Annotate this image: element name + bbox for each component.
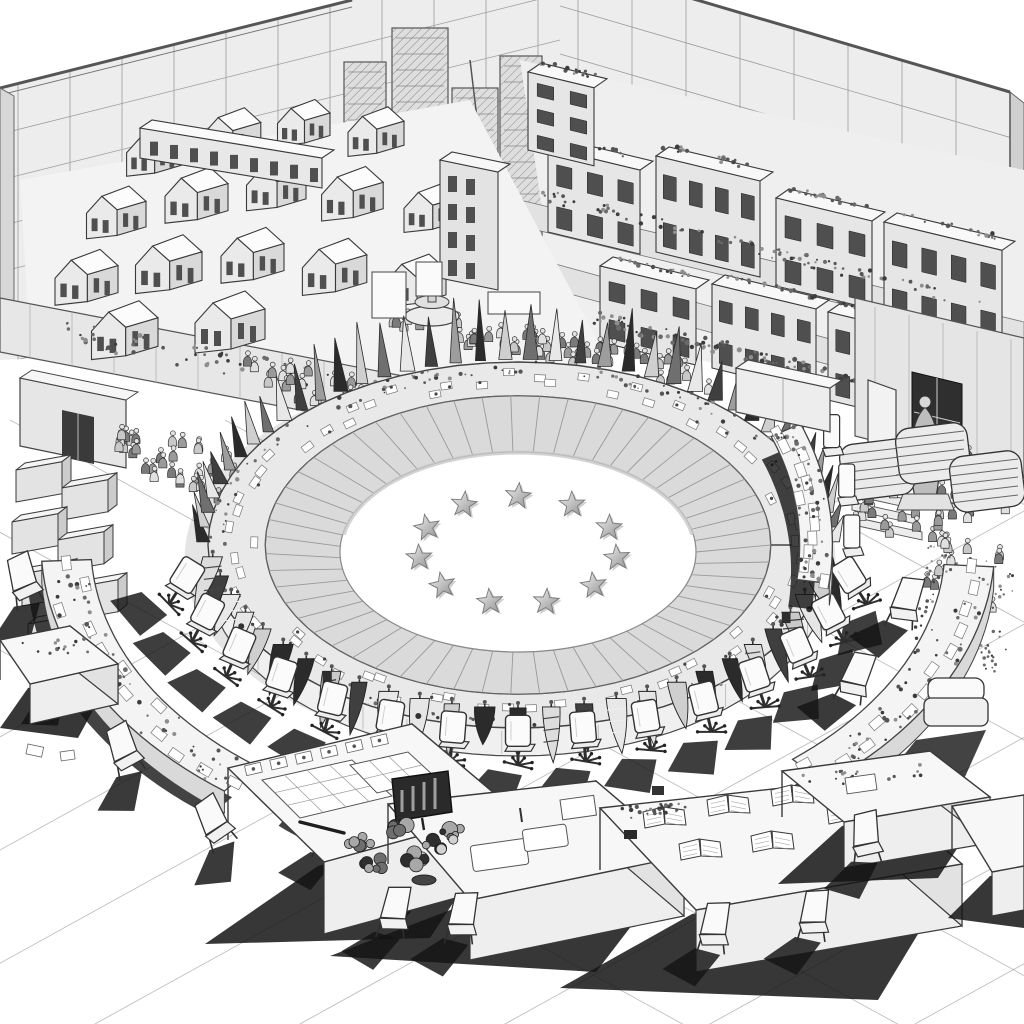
- illustration: [0, 0, 1024, 1024]
- plinth: [416, 262, 442, 296]
- scene-svg: [0, 0, 1024, 1024]
- floor-papers: [60, 750, 75, 761]
- plinth: [372, 272, 406, 318]
- sack-pile: [948, 449, 1024, 513]
